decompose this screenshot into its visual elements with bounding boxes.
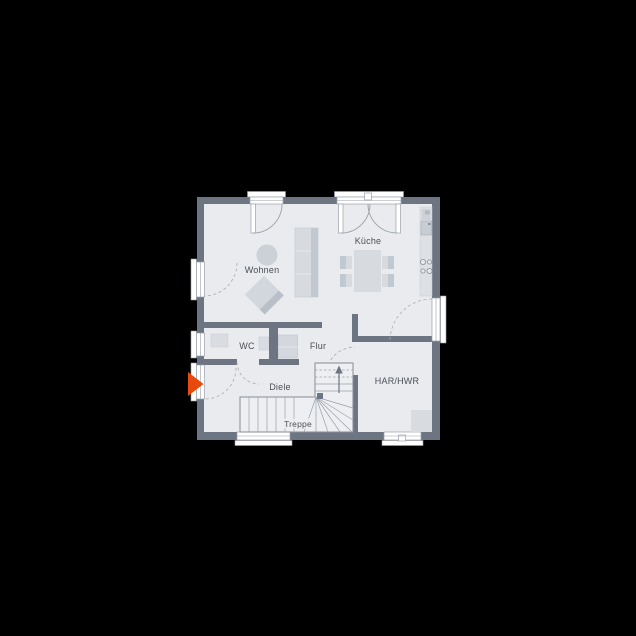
wc-sink bbox=[211, 334, 228, 347]
door-leaf-kitchen-right bbox=[396, 204, 401, 233]
sink-basin bbox=[425, 211, 430, 215]
hall-cabinet bbox=[279, 335, 298, 358]
sill-left-living bbox=[191, 259, 197, 300]
round-table bbox=[257, 245, 278, 266]
sill-left-wc bbox=[191, 331, 197, 358]
door-leaf-kitchen-left bbox=[339, 204, 344, 233]
oven-knob bbox=[428, 223, 431, 225]
shelf-side-panel bbox=[311, 228, 318, 297]
sill-top-living bbox=[248, 192, 286, 198]
stair-newel-post bbox=[317, 393, 323, 399]
chair-back bbox=[388, 256, 394, 269]
room-label-kitchen: Küche bbox=[355, 236, 382, 246]
room-label-hallway: Flur bbox=[310, 341, 326, 351]
floorplan-canvas: Wohnen Küche WC Flur Diele Treppe HAR/HW… bbox=[0, 0, 636, 636]
sill-right-kitchen bbox=[441, 296, 447, 343]
door-leaf-living bbox=[251, 204, 256, 233]
room-label-foyer: Diele bbox=[269, 382, 291, 392]
utility-equipment bbox=[411, 410, 432, 432]
chair-back bbox=[340, 274, 346, 287]
burner bbox=[420, 259, 425, 264]
chair-back bbox=[340, 256, 346, 269]
wc-toilet bbox=[259, 337, 269, 350]
wall-living-south bbox=[204, 322, 322, 328]
dining-table bbox=[354, 250, 381, 292]
chair-back bbox=[388, 274, 394, 287]
room-label-living: Wohnen bbox=[245, 265, 280, 275]
burner bbox=[421, 269, 425, 273]
wall-wc-plumbing bbox=[269, 328, 278, 364]
wall-wc-south-right bbox=[259, 359, 299, 365]
sill-bottom-stairs bbox=[235, 441, 292, 446]
shelf-unit bbox=[295, 228, 318, 297]
room-label-stairs: Treppe bbox=[284, 419, 312, 429]
kitchen-counter bbox=[420, 207, 432, 296]
room-label-utility: HAR/HWR bbox=[375, 376, 420, 386]
wall-utility-north bbox=[352, 336, 432, 342]
wall-wc-south-left bbox=[204, 359, 237, 365]
burner bbox=[427, 260, 431, 264]
floorplan-stage: Wohnen Küche WC Flur Diele Treppe HAR/HW… bbox=[0, 0, 636, 636]
room-label-wc: WC bbox=[239, 341, 255, 351]
kitchen-door-center-post bbox=[365, 193, 372, 200]
burner bbox=[427, 268, 432, 273]
counter-body bbox=[420, 207, 432, 296]
